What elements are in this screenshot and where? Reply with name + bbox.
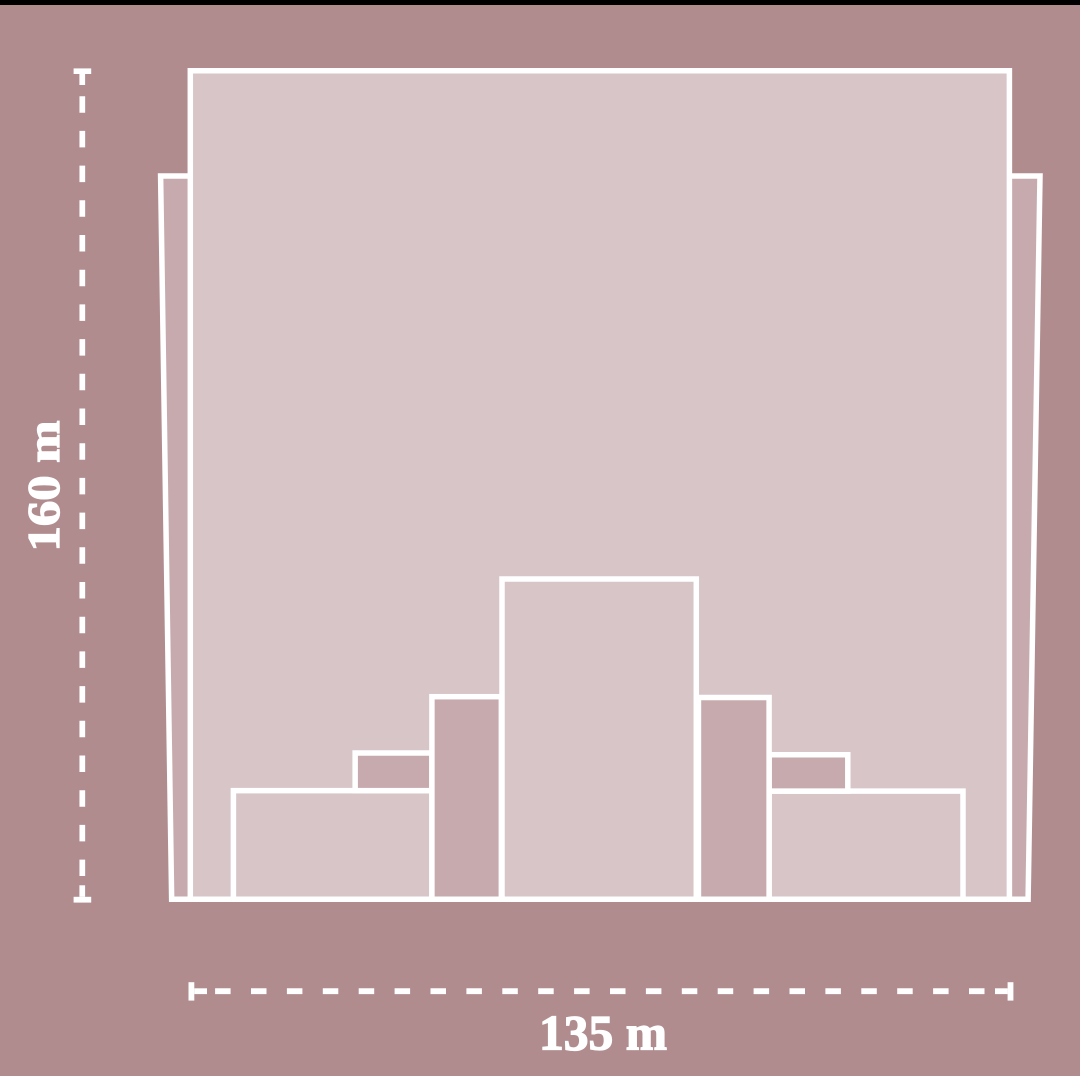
- svg-text:135 m: 135 m: [539, 1005, 667, 1061]
- svg-text:160 m: 160 m: [18, 421, 69, 552]
